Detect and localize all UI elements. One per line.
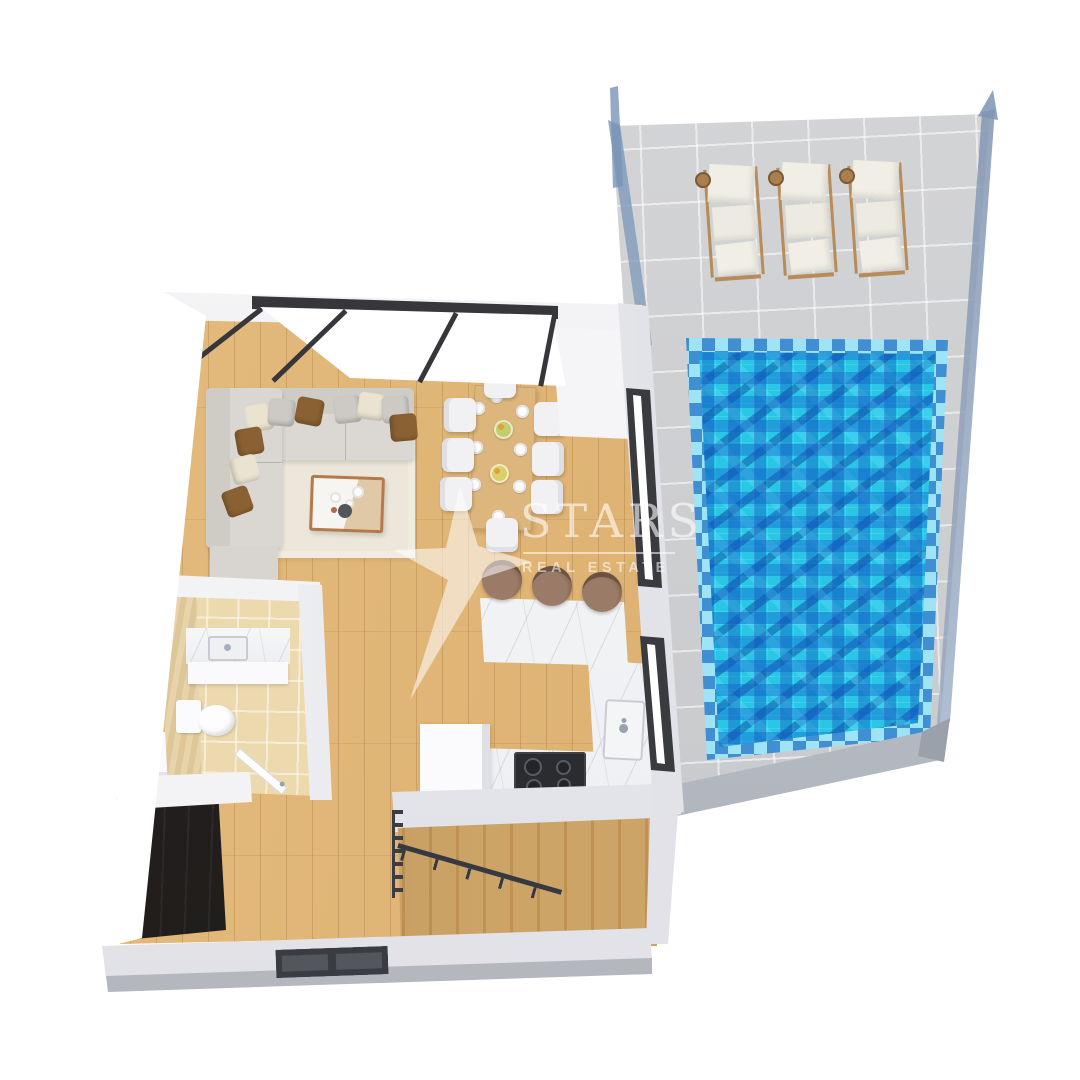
cooktop-burner — [556, 760, 571, 775]
window-mullion — [417, 312, 458, 383]
sofa-pillow — [356, 391, 386, 421]
cooktop-burner — [524, 758, 542, 776]
terrace-corner-wall — [0, 0, 1080, 1080]
watermark: STARS REAL ESTATE — [0, 0, 1080, 1080]
dining-chair — [486, 518, 518, 552]
lounger-foot — [788, 272, 834, 279]
east-window-glass — [0, 0, 1080, 1080]
watermark-subtitle: REAL ESTATE — [522, 560, 712, 576]
glass-railing-left-tip — [0, 0, 1080, 1080]
dining-chair — [444, 398, 476, 432]
lounger-backrest-cushion — [851, 160, 899, 200]
window-mullion — [271, 309, 347, 383]
north-window-glass — [0, 0, 1080, 1080]
lounger-frame — [847, 166, 858, 274]
lounger-wheel — [767, 170, 784, 187]
dining-chair — [534, 402, 566, 436]
watermark-divider — [523, 552, 675, 554]
lounger-wheel — [694, 172, 711, 189]
sofa-ottoman — [210, 546, 278, 590]
south-wall — [0, 0, 1080, 1080]
lounger-frame — [776, 168, 787, 276]
entry-cabinet — [138, 732, 218, 776]
sofa-pillow — [228, 453, 261, 486]
bathroom-wall-bottom — [0, 0, 1080, 1080]
bar-stool — [532, 566, 572, 606]
dining-chair — [532, 442, 564, 476]
sun-lounger — [702, 162, 766, 282]
dining-plate — [492, 510, 505, 523]
bathroom-floor — [0, 0, 1080, 1080]
lounger-leg-cushion — [788, 238, 832, 274]
pool-terrace-floor — [0, 0, 1080, 1080]
northeast-wall-block — [0, 0, 1080, 1080]
bathroom-wall-top — [0, 0, 1080, 1080]
entry-cabinet-front — [140, 772, 220, 790]
kitchen-sink — [602, 699, 645, 761]
dining-table — [470, 385, 537, 531]
bathroom-vanity-front — [188, 662, 288, 684]
lounger-seat-cushion — [856, 201, 901, 238]
coffee-table-plate — [345, 499, 354, 508]
coffee-table-plate — [330, 492, 341, 503]
cooktop — [514, 752, 586, 798]
window-frame-left — [170, 307, 263, 381]
bathroom-wall-right — [0, 0, 1080, 1080]
dining-plate — [513, 480, 526, 493]
stairs-north-wall — [0, 0, 1080, 1080]
sofa-pillows — [0, 0, 1080, 1080]
glass-railing-right-tip — [0, 0, 1080, 1080]
window-frame-right — [538, 315, 557, 387]
breakfast-bar-counter — [0, 0, 1080, 1080]
sofa-section-top — [214, 388, 414, 460]
staircase-steps — [0, 0, 1080, 1080]
sofa-pillow — [333, 395, 363, 425]
sofa-pillow — [234, 426, 265, 457]
kitchen-counter-right — [0, 0, 1080, 1080]
dining-plates — [0, 0, 1080, 1080]
lounger-foot — [859, 270, 905, 277]
dining-chairs — [0, 0, 1080, 1080]
floor-plan-render: STARS REAL ESTATE — [0, 0, 1080, 1080]
wood-floor — [0, 0, 1080, 1080]
stair-railing — [397, 843, 562, 895]
cooktop-burner — [526, 779, 542, 795]
lounger-frame — [754, 166, 765, 274]
cooktop-burner — [557, 778, 571, 792]
east-window-frame — [0, 0, 1080, 1080]
swimming-pool — [0, 0, 1080, 1080]
coffee-table-plate — [352, 486, 364, 498]
fruit-bowl — [494, 420, 513, 439]
star-logo-icon — [394, 462, 536, 708]
dining-chair — [440, 477, 472, 511]
lounger-frame — [703, 170, 714, 278]
west-wall — [0, 0, 1080, 1080]
sofa-pillow — [267, 398, 296, 427]
lounger-backrest-cushion — [780, 162, 828, 202]
closet-dark-floor — [0, 0, 1080, 1080]
kitchen-island — [420, 724, 490, 804]
coffee-table-decor — [331, 507, 337, 513]
bar-stools — [0, 0, 1080, 1080]
sofa-pillow — [220, 484, 255, 519]
dining-plate — [470, 441, 483, 454]
coffee-table-tray — [338, 504, 352, 518]
bar-stool — [482, 560, 522, 600]
dining-plate — [490, 390, 503, 403]
sofa-pillow — [389, 413, 418, 442]
fruit-bowls — [0, 0, 1080, 1080]
stair-railing-post — [392, 810, 403, 898]
fruit-bowl — [490, 464, 509, 483]
sofa-pillow — [244, 402, 275, 433]
glass-railing-left — [0, 0, 1080, 1080]
window-header-frame — [0, 0, 1080, 1080]
south-wall-face — [0, 0, 1080, 1080]
bar-stool — [582, 572, 622, 612]
kitchen-counter-bottom — [0, 0, 1080, 1080]
dining-chair — [442, 438, 474, 472]
closet-clothes — [150, 786, 218, 812]
sun-lounger — [846, 158, 910, 278]
dining-plate — [468, 478, 481, 491]
toilet-tank — [176, 700, 201, 733]
dining-chair — [484, 364, 516, 398]
dining-plate — [516, 405, 529, 418]
bathroom-sink — [208, 636, 248, 661]
entry-grate — [276, 946, 389, 978]
lounger-frame — [827, 164, 838, 272]
pool-border-tiles — [0, 0, 1080, 1080]
dining-plate — [472, 402, 485, 415]
lounger-backrest-cushion — [707, 164, 755, 204]
glass-railing-right — [0, 0, 1080, 1080]
lounger-wheel — [838, 168, 855, 185]
east-wall — [0, 0, 1080, 1080]
stairs-east-wall — [0, 0, 1080, 1080]
sofa-pillow — [294, 396, 326, 428]
east-door-glass — [0, 0, 1080, 1080]
lounger-foot — [715, 274, 761, 281]
bathroom-vanity — [186, 628, 290, 664]
area-rug — [210, 428, 415, 558]
lounger-seat-cushion — [785, 203, 830, 240]
sun-loungers — [0, 0, 1080, 1080]
dining-chair — [531, 480, 563, 514]
terrace-wall-cap — [0, 0, 1080, 1080]
toilet-bowl — [198, 705, 235, 736]
lounger-leg-cushion — [859, 236, 903, 272]
lounger-seat-cushion — [712, 205, 757, 242]
terrace-edge-wall — [0, 0, 1080, 1080]
north-wall — [0, 0, 1080, 1080]
east-door-frame — [0, 0, 1080, 1080]
watermark-title: STARS — [520, 498, 690, 544]
lounger-leg-cushion — [715, 240, 759, 276]
dining-plate — [514, 443, 527, 456]
lounger-frame — [898, 162, 909, 270]
sofa-pillow — [381, 395, 410, 424]
coffee-table — [309, 475, 385, 534]
bathroom-door — [234, 748, 287, 795]
sun-lounger — [775, 160, 839, 280]
bathroom-wall-face — [0, 0, 1080, 1080]
sofa-section-left — [206, 388, 282, 548]
